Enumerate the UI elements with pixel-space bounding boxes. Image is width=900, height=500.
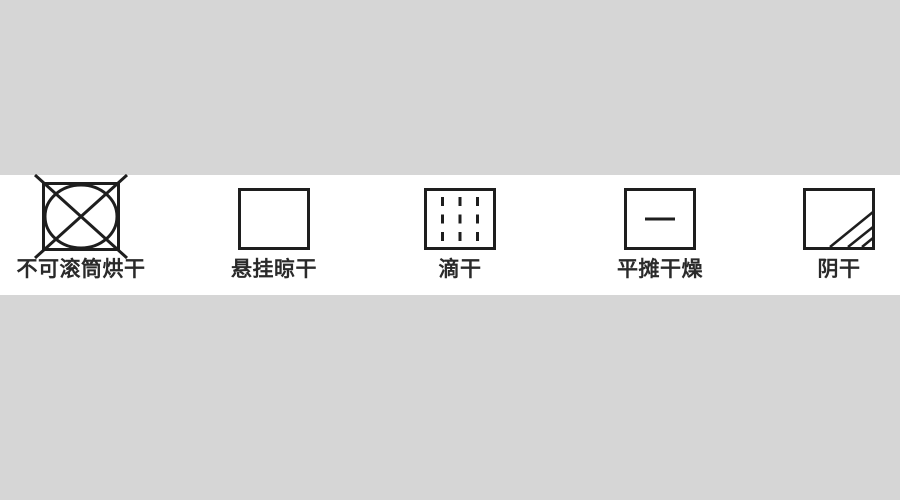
hang-to-dry-icon [238,188,310,250]
care-label: 平摊干燥 [617,259,703,281]
symbol-box [749,175,900,250]
symbol-box [0,175,171,250]
do-not-tumble-dry-icon [33,174,129,259]
care-label: 悬挂晾干 [231,259,317,281]
care-label: 滴干 [439,259,482,281]
care-item-do-not-tumble-dry: 不可滚筒烘干 [0,175,171,295]
care-label: 阴干 [818,259,861,281]
symbol-box [370,175,550,250]
drip-dry-icon [424,188,496,250]
symbol-box [184,175,364,250]
care-label: 不可滚筒烘干 [17,259,146,281]
dry-in-shade-icon [803,188,875,250]
care-item-hang-to-dry: 悬挂晾干 [184,175,364,295]
care-item-drip-dry: 滴干 [370,175,550,295]
care-symbols-band: 不可滚筒烘干 悬挂晾干 滴干 平摊干燥 [0,175,900,295]
care-item-dry-in-shade: 阴干 [749,175,900,295]
symbol-box [570,175,750,250]
care-item-dry-flat: 平摊干燥 [570,175,750,295]
dry-flat-icon [624,188,696,250]
